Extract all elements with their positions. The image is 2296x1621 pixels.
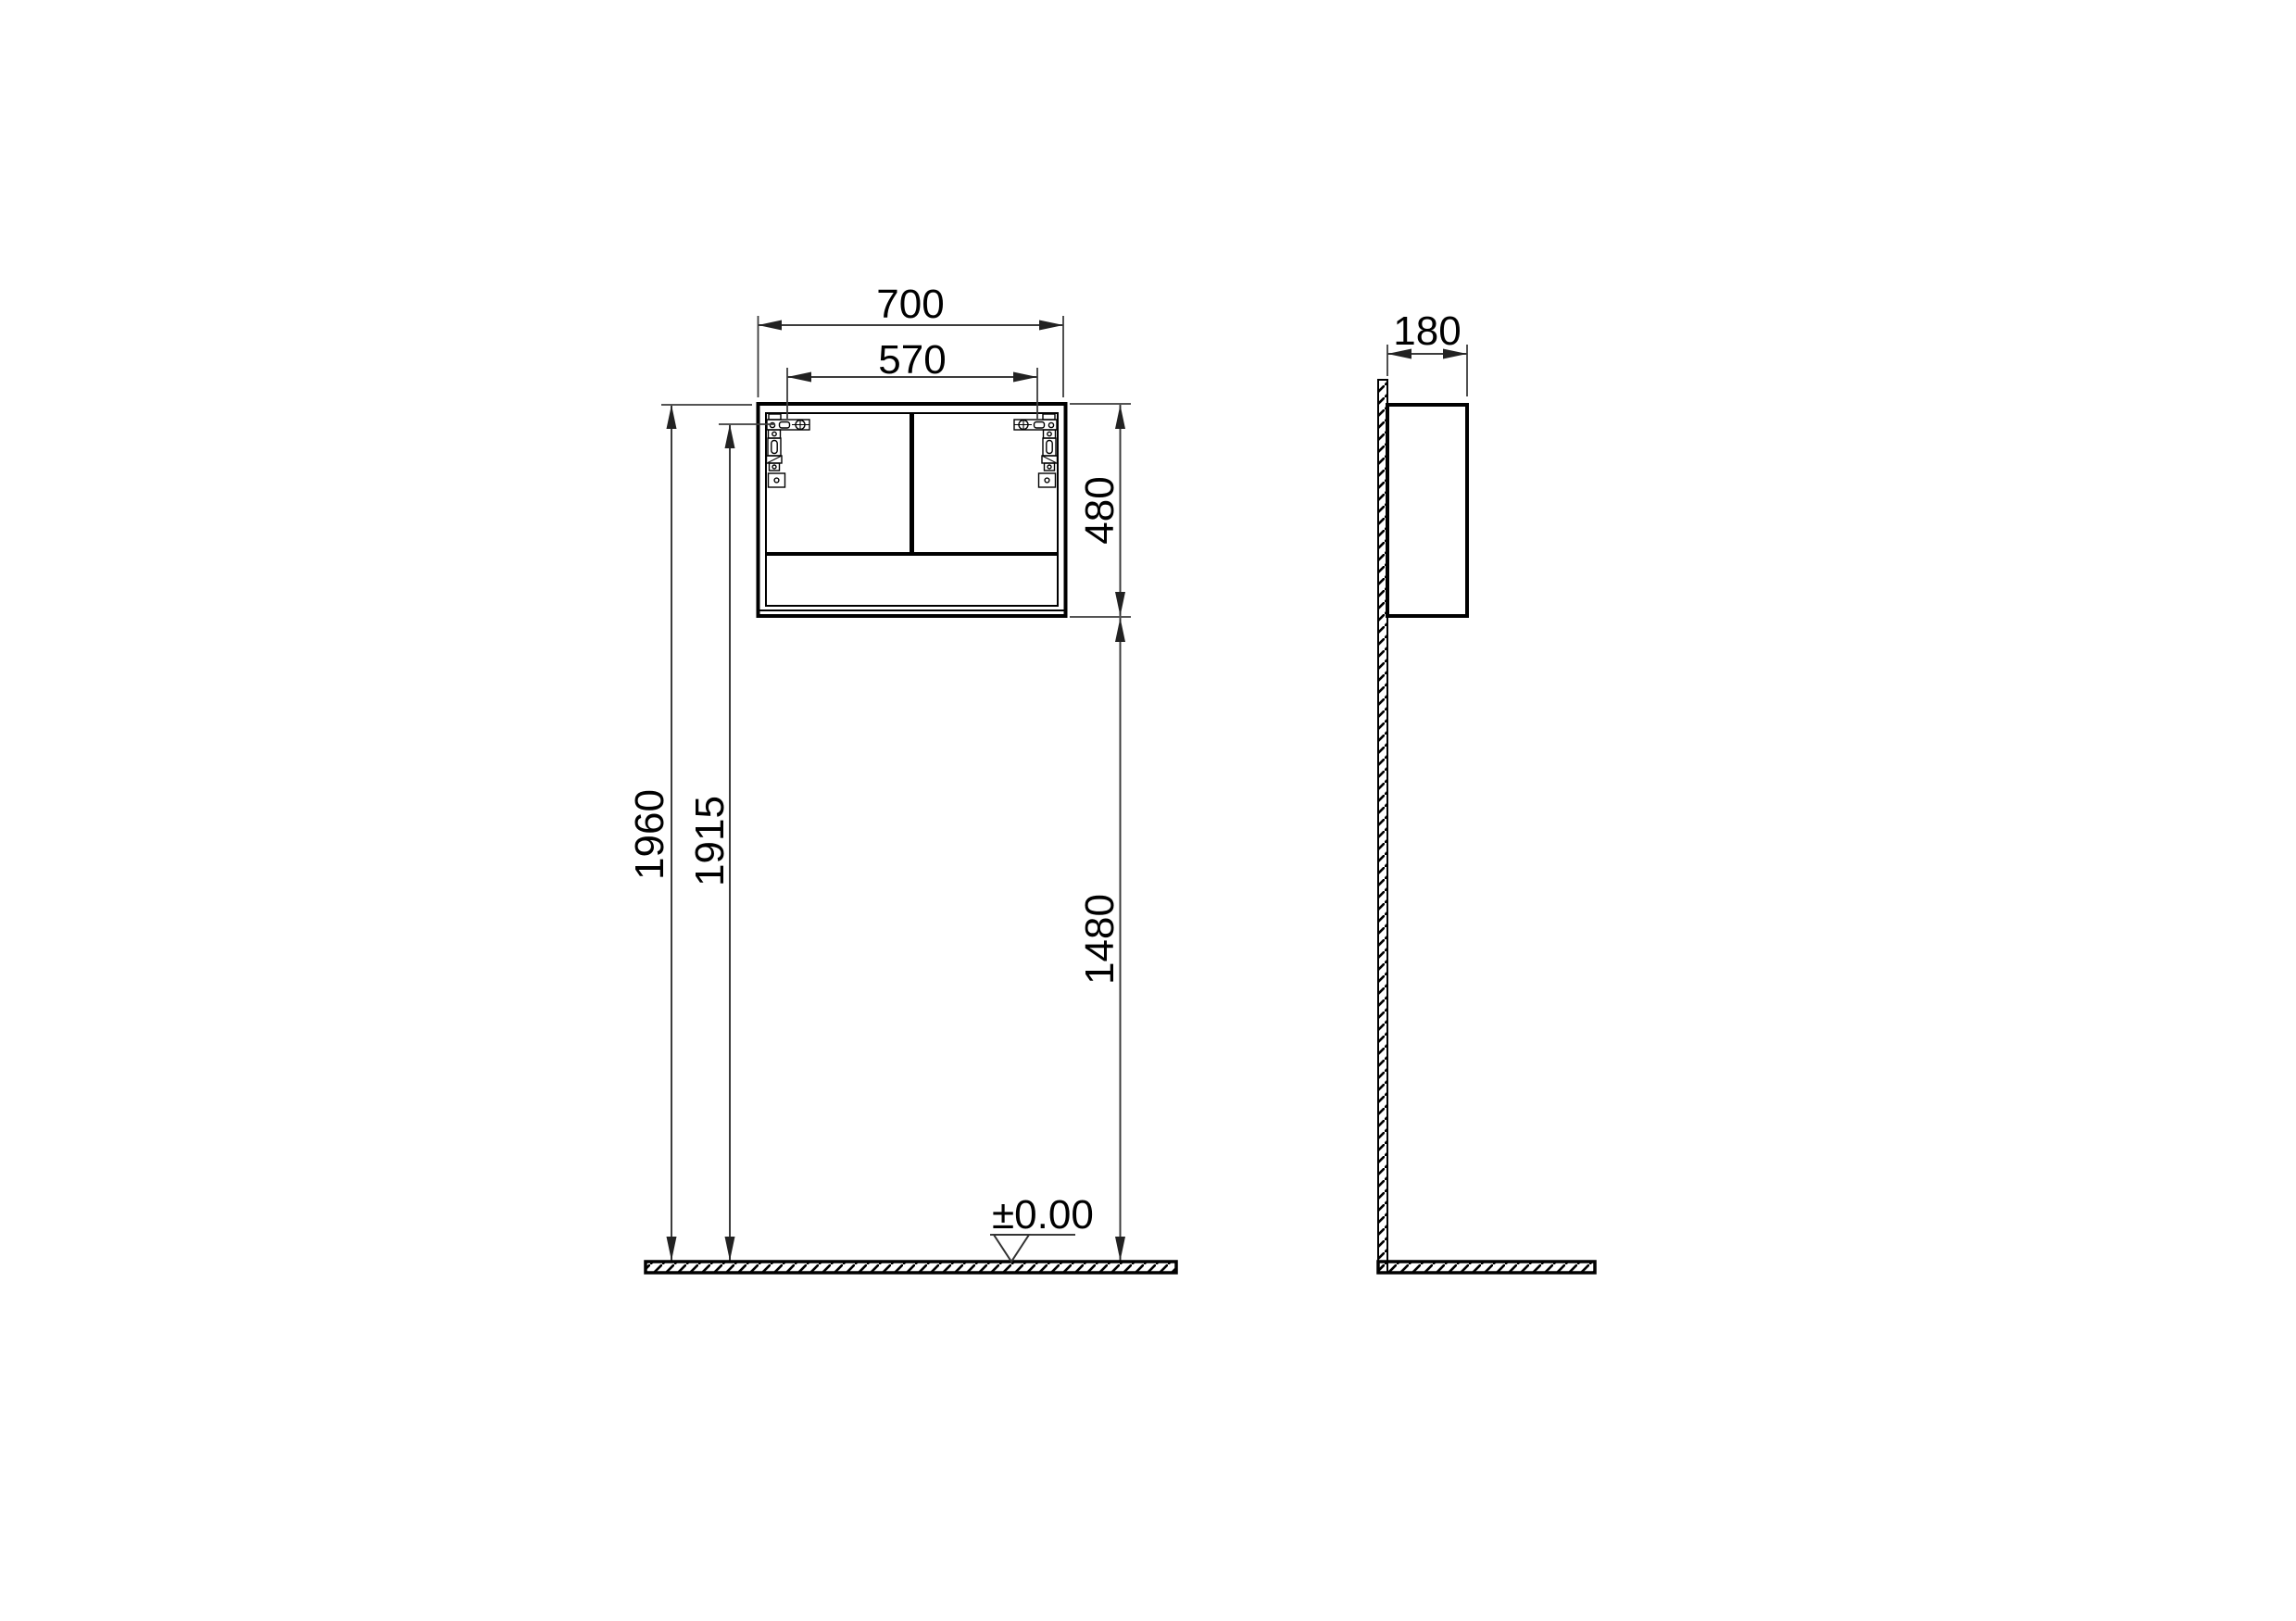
arrowhead <box>725 1237 735 1261</box>
cabinet-side-profile <box>1387 405 1467 616</box>
dim-label-570: 570 <box>878 337 946 383</box>
datum-marker: ±0.00 <box>990 1192 1094 1262</box>
front-view: 700 570 480 1960 <box>627 282 1176 1273</box>
dim-label-datum: ±0.00 <box>992 1192 1094 1238</box>
arrowhead <box>1013 372 1037 383</box>
hinge-right <box>1014 414 1058 487</box>
side-view: 180 <box>1378 308 1595 1273</box>
dim-label-480: 480 <box>1077 476 1123 544</box>
drawing-svg: 700 570 480 1960 <box>0 0 2296 1621</box>
arrowhead <box>667 1237 677 1261</box>
arrowhead <box>1115 592 1125 616</box>
floor-side <box>1378 1262 1595 1273</box>
arrowhead <box>759 320 783 331</box>
dim-label-1915: 1915 <box>687 796 733 886</box>
dim-label-700: 700 <box>876 282 944 327</box>
cabinet-front <box>759 404 1066 616</box>
dim-label-180: 180 <box>1393 308 1461 354</box>
dim-label-1480: 1480 <box>1077 894 1123 985</box>
level-triangle-icon <box>994 1235 1029 1262</box>
arrowhead <box>1039 320 1063 331</box>
floor-front <box>646 1262 1176 1273</box>
arrowhead <box>787 372 811 383</box>
arrowhead <box>725 424 735 448</box>
arrowhead <box>1115 1237 1125 1261</box>
dim-label-1960: 1960 <box>627 789 672 880</box>
arrowhead <box>1115 618 1125 642</box>
arrowhead <box>667 405 677 429</box>
technical-drawing: 700 570 480 1960 <box>0 0 2296 1621</box>
arrowhead <box>1115 405 1125 429</box>
